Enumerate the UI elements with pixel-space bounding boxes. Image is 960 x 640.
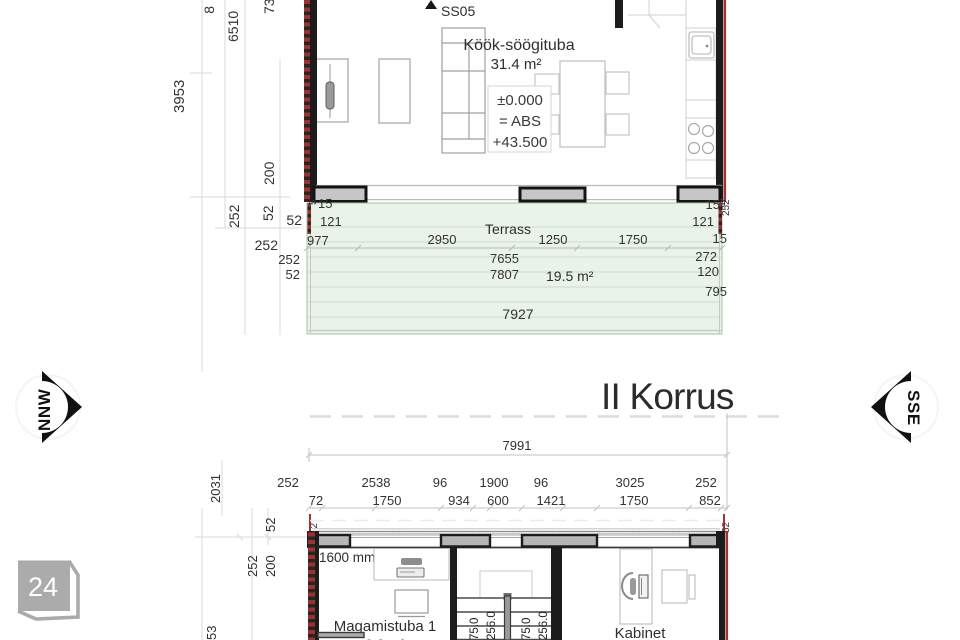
svg-text:6510: 6510 [225, 11, 241, 42]
svg-text:7927: 7927 [502, 306, 533, 322]
svg-text:272: 272 [695, 249, 717, 264]
svg-text:96: 96 [534, 475, 548, 490]
svg-text:SS05: SS05 [441, 3, 475, 19]
svg-text:2031: 2031 [208, 474, 223, 503]
svg-text:2950: 2950 [428, 232, 457, 247]
svg-text:3953: 3953 [171, 80, 188, 113]
svg-text:52: 52 [260, 205, 276, 221]
svg-text:1421: 1421 [537, 493, 566, 508]
svg-text:±0.000: ±0.000 [497, 92, 543, 109]
svg-text:9.9 m²: 9.9 m² [365, 636, 405, 640]
svg-text:852: 852 [699, 493, 721, 508]
svg-text:75.0: 75.0 [469, 618, 481, 640]
svg-text:15: 15 [706, 197, 720, 212]
svg-text:5: 5 [308, 199, 319, 205]
svg-text:252: 252 [226, 204, 242, 228]
svg-text:1750: 1750 [619, 232, 648, 247]
svg-text:256.0: 256.0 [538, 611, 550, 640]
svg-text:120: 120 [697, 264, 719, 279]
svg-text:52: 52 [263, 518, 278, 532]
svg-text:256.0: 256.0 [486, 611, 498, 640]
svg-text:75.0: 75.0 [521, 618, 533, 640]
svg-text:15: 15 [318, 196, 332, 211]
svg-text:200: 200 [261, 161, 277, 185]
svg-text:96: 96 [433, 475, 447, 490]
svg-text:7807: 7807 [490, 267, 519, 282]
svg-text:795: 795 [705, 284, 727, 299]
svg-text:24: 24 [28, 572, 58, 602]
svg-text:3025: 3025 [616, 475, 645, 490]
svg-text:252: 252 [695, 475, 717, 490]
svg-text:121: 121 [692, 214, 714, 229]
svg-text:252: 252 [277, 475, 299, 490]
svg-text:7991: 7991 [503, 438, 532, 453]
svg-text:52: 52 [286, 212, 302, 228]
svg-text:+43.500: +43.500 [493, 134, 548, 151]
svg-text:53: 53 [204, 626, 219, 640]
svg-text:73: 73 [261, 0, 277, 14]
svg-text:1900: 1900 [480, 475, 509, 490]
svg-text:Terrass: Terrass [485, 221, 531, 237]
svg-text:200: 200 [263, 555, 278, 577]
svg-text:19.5 m²: 19.5 m² [546, 268, 594, 284]
svg-text:2538: 2538 [362, 475, 391, 490]
svg-text:121: 121 [320, 214, 342, 229]
svg-text:15: 15 [713, 231, 727, 246]
svg-text:SSE: SSE [904, 390, 923, 426]
svg-text:II Korrus: II Korrus [601, 376, 734, 417]
svg-text:52: 52 [286, 267, 300, 282]
svg-text:252: 252 [278, 252, 300, 267]
svg-text:8: 8 [201, 6, 217, 14]
svg-text:252: 252 [245, 555, 260, 577]
svg-text:9: 9 [720, 199, 726, 210]
svg-text:252: 252 [255, 237, 279, 253]
svg-text:934: 934 [448, 493, 470, 508]
svg-text:977: 977 [307, 233, 329, 248]
svg-text:31.4 m²: 31.4 m² [491, 56, 542, 73]
svg-text:1750: 1750 [620, 493, 649, 508]
svg-text:Köök-söögituba: Köök-söögituba [463, 37, 574, 54]
svg-text:1600 mm: 1600 mm [319, 550, 375, 565]
svg-text:1250: 1250 [539, 232, 568, 247]
svg-text:Kabinet: Kabinet [615, 625, 667, 640]
svg-text:600: 600 [487, 493, 509, 508]
svg-text:7655: 7655 [490, 251, 519, 266]
svg-text:NNW: NNW [35, 388, 54, 431]
svg-text:= ABS: = ABS [499, 113, 541, 130]
